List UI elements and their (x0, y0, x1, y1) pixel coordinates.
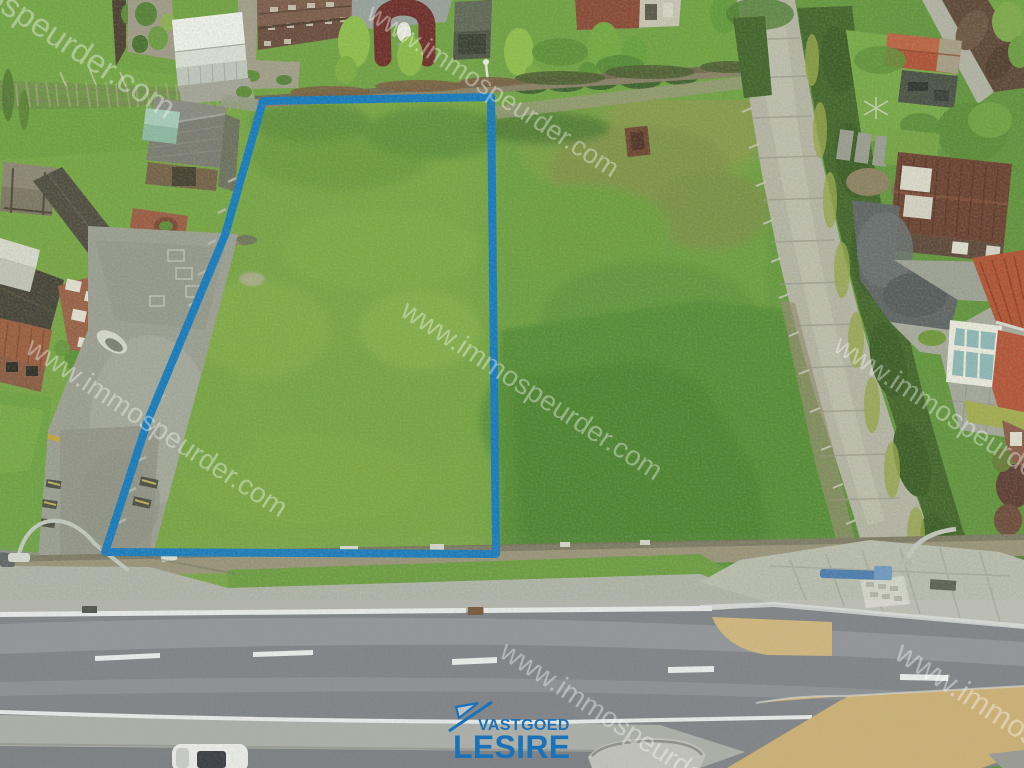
svg-text:LESIRE: LESIRE (453, 729, 570, 765)
